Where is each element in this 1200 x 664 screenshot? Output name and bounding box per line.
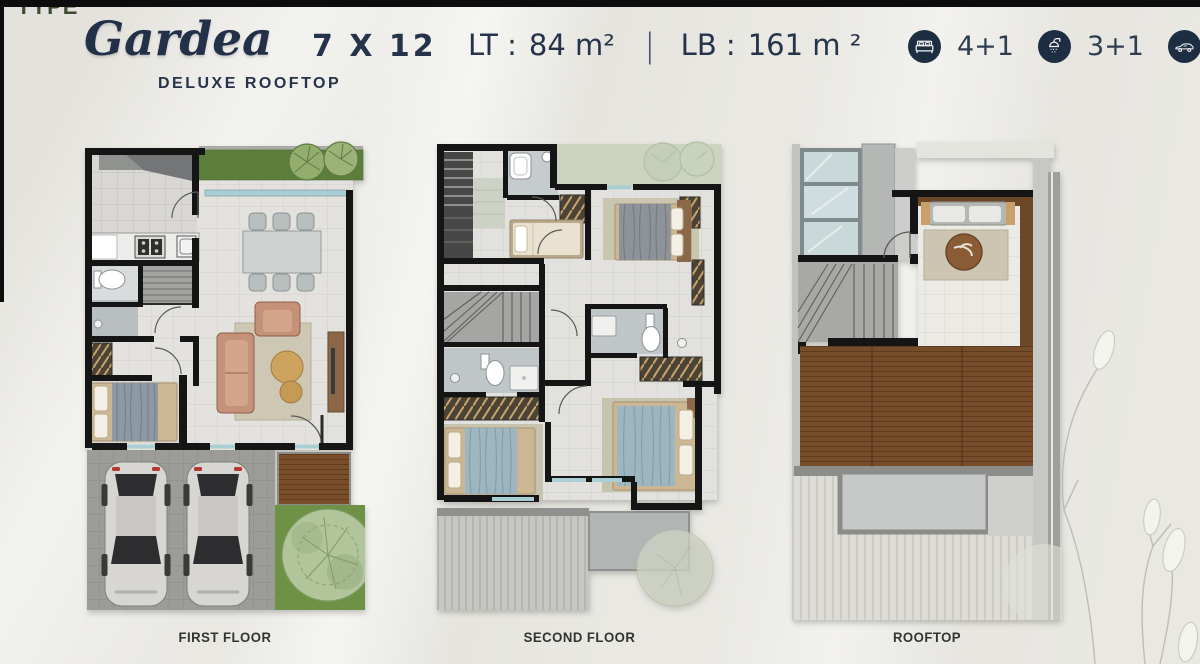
stairs	[798, 262, 898, 342]
balcony-roof	[437, 508, 713, 610]
bedroom-3	[443, 424, 543, 500]
wardrobe	[640, 357, 702, 381]
stairs	[142, 265, 194, 304]
shower-drain-icon	[94, 320, 102, 328]
bedroom	[89, 381, 185, 443]
rooftop-plan	[792, 142, 1062, 620]
first-floor-label: FIRST FLOOR	[93, 629, 356, 645]
toilet-icon	[486, 361, 504, 386]
coffee-table-small-icon	[280, 381, 302, 403]
sofa-icon	[921, 202, 1015, 225]
bathroom-mid-left	[443, 348, 540, 393]
terrace-deck	[278, 453, 350, 505]
bathroom-count: 3+1	[1087, 31, 1144, 62]
building-area-value: 161 m ²	[748, 28, 862, 62]
area-specs: LT : 84 m² | LB : 161 m ²	[468, 28, 871, 62]
land-area-label: LT :	[468, 28, 517, 62]
roof-panel	[862, 144, 895, 260]
stairs-mid	[443, 292, 540, 342]
family-room	[918, 197, 1033, 352]
skylight	[800, 148, 862, 260]
land-area-value: 84 m²	[529, 28, 615, 62]
wardrobe	[692, 260, 704, 305]
rooftop-deck	[800, 346, 1033, 466]
product-name: Gardea	[84, 12, 264, 67]
left-border-bar	[0, 0, 4, 302]
second-floor-plan	[437, 140, 722, 618]
roof-panel-top	[917, 142, 1054, 158]
second-floor-label: SECOND FLOOR	[446, 629, 714, 645]
kitchen	[89, 233, 199, 261]
rooftop-label: ROOFTOP	[800, 629, 1054, 645]
armchair-icon	[255, 302, 300, 336]
toilet-icon	[94, 270, 125, 289]
decorative-branch	[1040, 230, 1200, 664]
coffee-table-icon	[271, 351, 303, 383]
lower-roof-strip	[553, 142, 721, 188]
large-tree-icon	[282, 509, 365, 601]
vanity-icon	[592, 316, 616, 336]
floorplan-sheet: TYPE Gardea DELUXE ROOFTOP 7 X 12 LT : 8…	[0, 0, 1200, 664]
car-icon	[1168, 30, 1200, 63]
carport	[87, 450, 275, 610]
stove-icon	[135, 236, 165, 258]
sofa-icon	[217, 333, 254, 413]
car-2-icon	[184, 462, 253, 606]
facility-specs: 4+1 3+1 2	[908, 30, 1200, 63]
divider: |	[645, 25, 655, 64]
first-floor-plan	[85, 140, 365, 610]
building-area-label: LB :	[681, 28, 736, 62]
bed-icon	[908, 30, 941, 63]
tv-console-icon	[328, 332, 344, 412]
round-table-icon	[946, 234, 982, 270]
top-border-bar	[0, 0, 1200, 7]
lower-roof	[792, 466, 1062, 620]
car-1-icon	[102, 462, 171, 606]
lot-dimensions: 7 X 12	[312, 29, 437, 64]
wardrobe	[560, 195, 585, 223]
faint-tree-icon	[637, 530, 713, 606]
shower-icon	[1038, 30, 1071, 63]
wardrobe	[442, 397, 539, 420]
front-garden	[199, 142, 363, 180]
toilet-icon	[642, 327, 660, 352]
bedroom-count: 4+1	[957, 31, 1014, 62]
wardrobe	[89, 343, 112, 379]
backyard	[275, 505, 365, 610]
product-subtitle: DELUXE ROOFTOP	[158, 75, 341, 93]
